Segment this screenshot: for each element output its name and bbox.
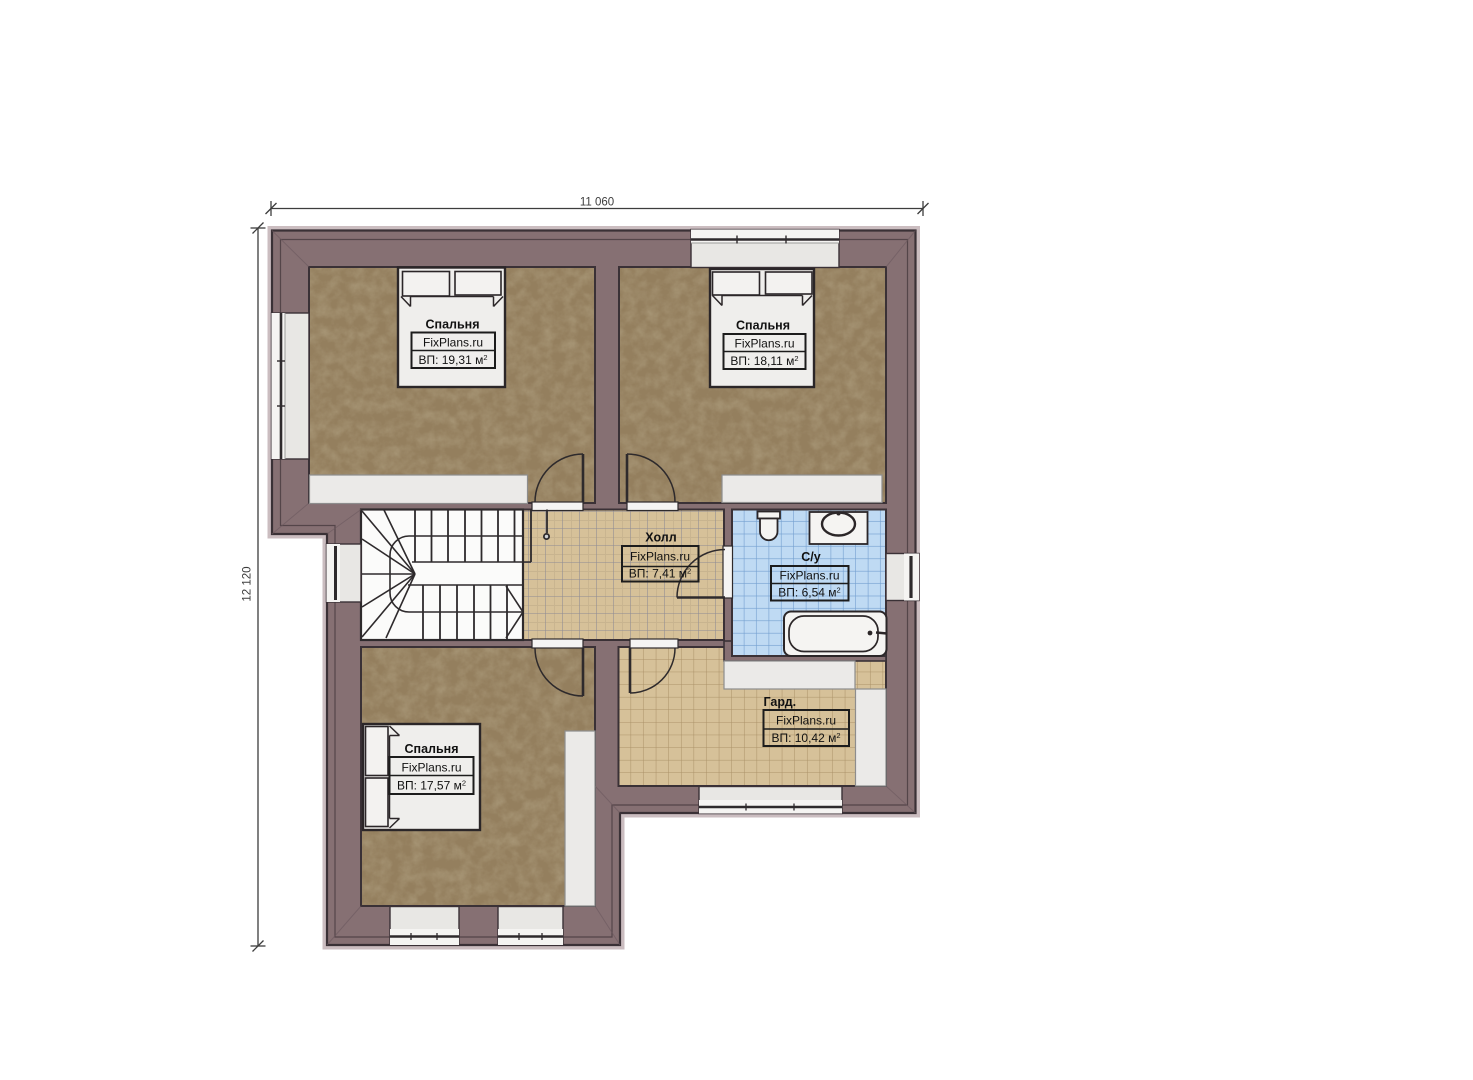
svg-text:ВП: 7,41 м2: ВП: 7,41 м2 bbox=[629, 567, 691, 581]
svg-text:Спальня: Спальня bbox=[736, 319, 790, 333]
svg-text:С/у: С/у bbox=[801, 550, 821, 564]
svg-text:FixPlans.ru: FixPlans.ru bbox=[776, 714, 836, 728]
svg-text:FixPlans.ru: FixPlans.ru bbox=[630, 550, 690, 564]
svg-text:Спальня: Спальня bbox=[426, 318, 480, 332]
svg-text:Холл: Холл bbox=[645, 531, 676, 545]
svg-text:11 060: 11 060 bbox=[580, 197, 614, 209]
svg-text:Гард.: Гард. bbox=[764, 695, 797, 709]
svg-text:FixPlans.ru: FixPlans.ru bbox=[423, 336, 483, 350]
svg-text:ВП: 19,31 м2: ВП: 19,31 м2 bbox=[418, 353, 487, 367]
svg-text:Спальня: Спальня bbox=[405, 742, 459, 756]
svg-text:ВП: 6,54 м2: ВП: 6,54 м2 bbox=[778, 586, 840, 600]
svg-text:ВП: 17,57 м2: ВП: 17,57 м2 bbox=[397, 779, 466, 793]
svg-text:ВП: 10,42 м2: ВП: 10,42 м2 bbox=[771, 731, 840, 745]
svg-text:FixPlans.ru: FixPlans.ru bbox=[734, 337, 794, 351]
svg-text:ВП: 18,11 м2: ВП: 18,11 м2 bbox=[730, 354, 798, 368]
svg-text:FixPlans.ru: FixPlans.ru bbox=[779, 569, 839, 583]
svg-text:12 120: 12 120 bbox=[242, 566, 254, 601]
svg-text:FixPlans.ru: FixPlans.ru bbox=[401, 761, 461, 775]
